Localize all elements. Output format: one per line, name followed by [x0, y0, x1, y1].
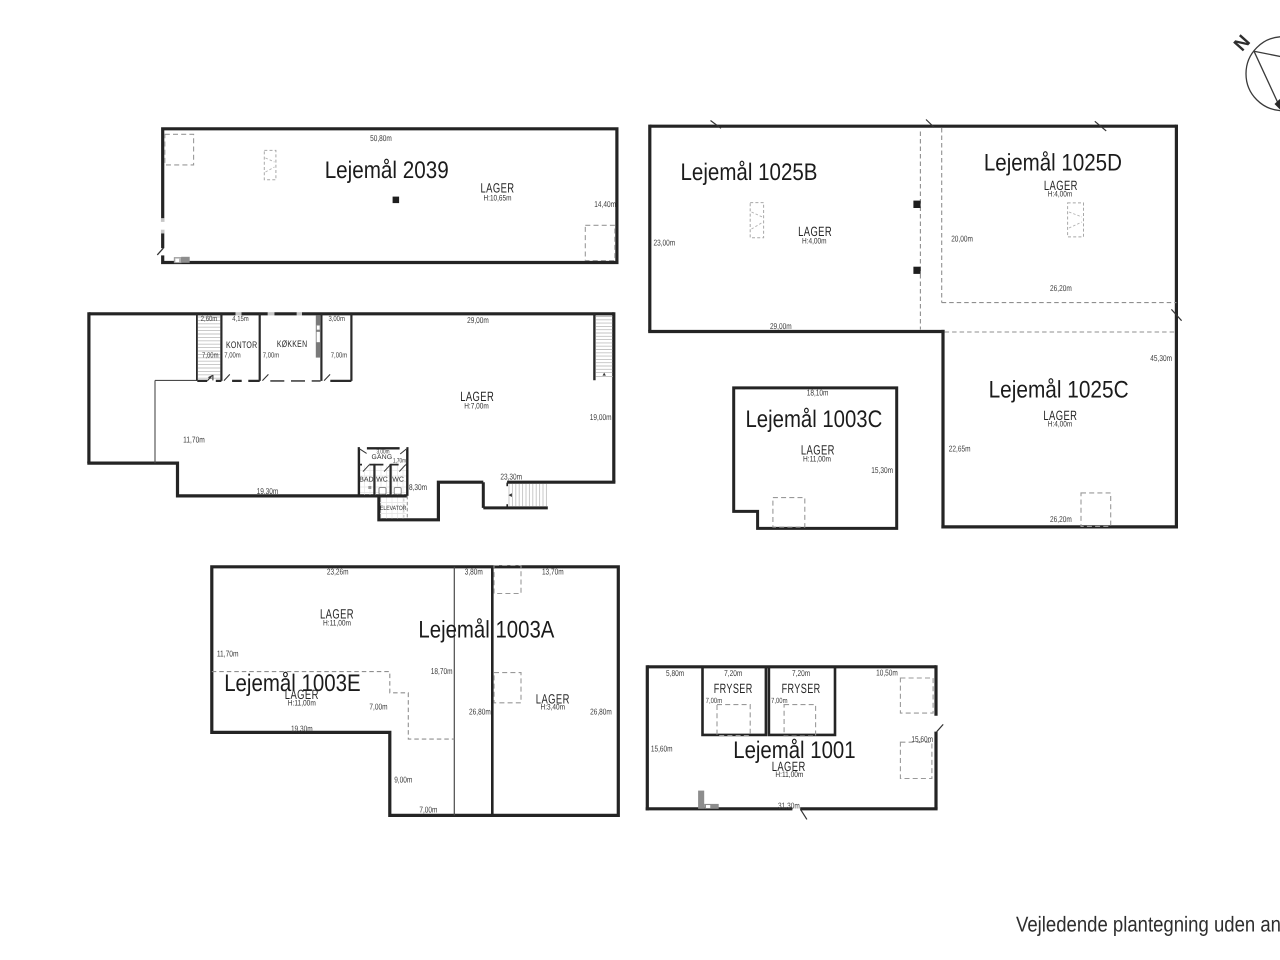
svg-text:1,70m: 1,70m	[393, 458, 406, 465]
svg-text:2,60m: 2,60m	[201, 314, 218, 323]
svg-text:18,70m: 18,70m	[431, 666, 453, 676]
svg-text:7,20m: 7,20m	[792, 668, 810, 678]
svg-text:H:10,65m: H:10,65m	[484, 194, 512, 203]
svg-text:H:11,00m: H:11,00m	[775, 770, 803, 779]
svg-text:BAD: BAD	[359, 477, 373, 484]
svg-text:26,20m: 26,20m	[1050, 283, 1072, 293]
svg-text:14,40m: 14,40m	[594, 199, 616, 209]
svg-text:31,30m: 31,30m	[778, 801, 800, 811]
svg-text:Lejemål 1025C: Lejemål 1025C	[989, 376, 1129, 403]
svg-text:9,00m: 9,00m	[394, 775, 412, 785]
svg-text:23,30m: 23,30m	[500, 471, 522, 481]
svg-text:H:4,00m: H:4,00m	[802, 236, 827, 245]
svg-text:19,30m: 19,30m	[291, 724, 313, 734]
svg-text:7,20m: 7,20m	[724, 668, 742, 678]
svg-text:FRYSER: FRYSER	[714, 681, 753, 696]
svg-text:8,30m: 8,30m	[409, 482, 427, 492]
svg-text:26,80m: 26,80m	[590, 706, 612, 716]
svg-text:7,00m: 7,00m	[202, 350, 219, 359]
svg-text:23,00m: 23,00m	[654, 238, 676, 248]
svg-text:19,00m: 19,00m	[590, 412, 612, 422]
svg-text:KONTOR: KONTOR	[226, 340, 258, 351]
svg-text:7,00m: 7,00m	[419, 805, 437, 815]
svg-text:KØKKEN: KØKKEN	[277, 339, 308, 350]
svg-text:29,00m: 29,00m	[467, 315, 489, 325]
svg-text:18,10m: 18,10m	[807, 388, 829, 398]
svg-text:26,80m: 26,80m	[469, 706, 491, 716]
svg-text:11,70m: 11,70m	[183, 435, 205, 445]
svg-text:H:3,40m: H:3,40m	[541, 703, 566, 712]
svg-text:H:11,00m: H:11,00m	[323, 618, 351, 627]
svg-text:15,60m: 15,60m	[911, 734, 933, 744]
svg-text:Lejemål 1025D: Lejemål 1025D	[984, 150, 1122, 177]
svg-text:7,00m: 7,00m	[706, 696, 723, 705]
svg-text:11,70m: 11,70m	[217, 649, 239, 659]
svg-text:H:4,00m: H:4,00m	[1048, 419, 1073, 428]
svg-text:3,00m: 3,00m	[328, 314, 345, 323]
svg-text:23,26m: 23,26m	[327, 566, 349, 576]
svg-text:15,30m: 15,30m	[871, 465, 893, 475]
svg-text:WC: WC	[392, 477, 404, 484]
svg-text:7,00m: 7,00m	[331, 350, 348, 359]
svg-text:Lejemål 1003A: Lejemål 1003A	[418, 616, 554, 643]
svg-text:26,20m: 26,20m	[1050, 514, 1072, 524]
svg-text:10,50m: 10,50m	[876, 668, 898, 678]
svg-text:7,00m: 7,00m	[771, 696, 788, 705]
svg-text:5,80m: 5,80m	[666, 668, 684, 678]
svg-text:50,80m: 50,80m	[370, 133, 392, 143]
svg-text:7,00m: 7,00m	[369, 702, 387, 712]
svg-text:7,00m: 7,00m	[263, 350, 280, 359]
svg-text:Lejemål 2039: Lejemål 2039	[325, 157, 449, 184]
svg-text:N: N	[1230, 31, 1255, 55]
svg-text:20,00m: 20,00m	[951, 233, 973, 243]
svg-text:Lejemål 1025B: Lejemål 1025B	[681, 159, 818, 186]
svg-text:29,00m: 29,00m	[770, 321, 792, 331]
svg-text:Vejledende plantegning uden an: Vejledende plantegning uden ansvar	[1016, 913, 1280, 937]
svg-text:H:7,00m: H:7,00m	[464, 402, 489, 411]
svg-text:ELEVATOR: ELEVATOR	[380, 505, 407, 512]
svg-text:4,15m: 4,15m	[232, 314, 249, 323]
svg-text:H:4,00m: H:4,00m	[1048, 190, 1073, 199]
svg-text:13,70m: 13,70m	[542, 566, 564, 576]
svg-text:WC: WC	[376, 477, 388, 484]
svg-text:19,30m: 19,30m	[257, 486, 279, 496]
svg-text:GANG: GANG	[371, 454, 392, 461]
svg-text:22,65m: 22,65m	[949, 443, 971, 453]
svg-text:Lejemål 1003C: Lejemål 1003C	[746, 406, 883, 433]
svg-text:45,30m: 45,30m	[1150, 353, 1172, 363]
svg-text:H:11,00m: H:11,00m	[803, 455, 831, 464]
svg-text:7,00m: 7,00m	[224, 350, 241, 359]
svg-text:15,60m: 15,60m	[651, 743, 673, 753]
svg-text:FRYSER: FRYSER	[782, 681, 821, 696]
svg-text:H:11,00m: H:11,00m	[288, 698, 316, 707]
svg-text:3,80m: 3,80m	[465, 566, 483, 576]
